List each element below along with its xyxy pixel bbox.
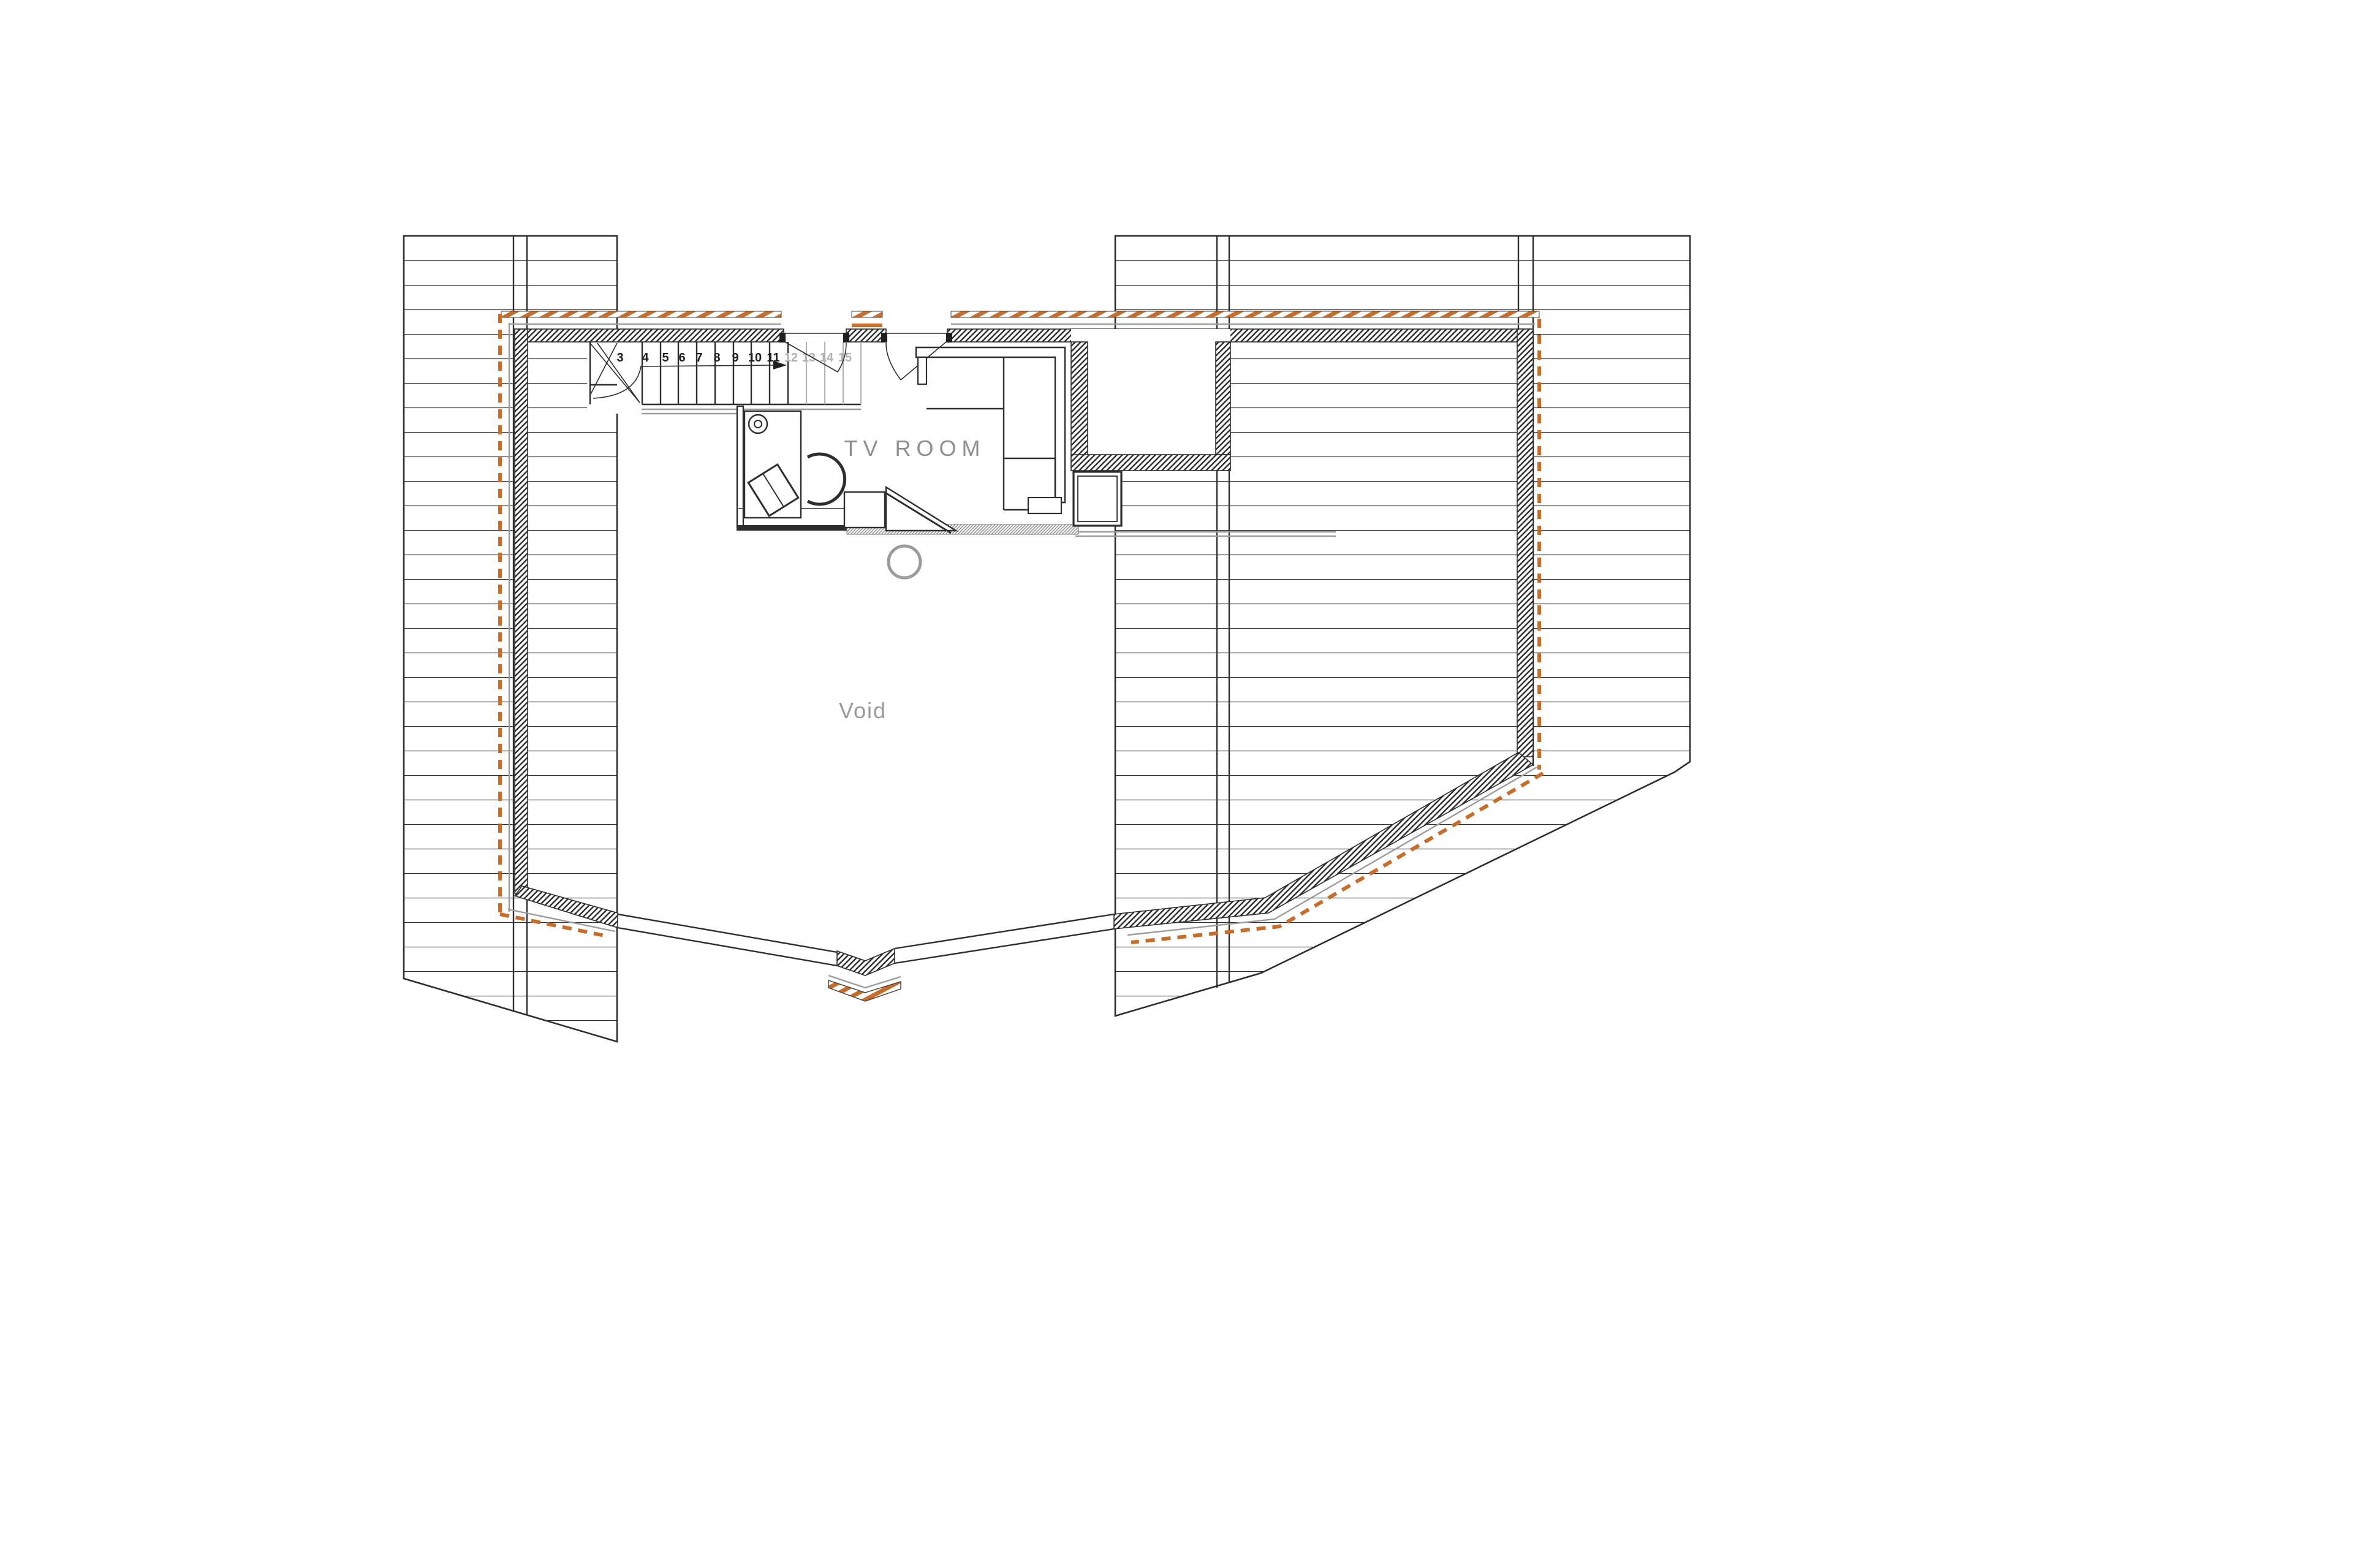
floor-plan-sheet: 3 4 5 6 7 8 9 10 11 12 13 14 15 (0, 0, 2353, 1568)
tread-number: 9 (732, 351, 738, 365)
floor-plan-drawing: 3 4 5 6 7 8 9 10 11 12 13 14 15 (0, 0, 2353, 1568)
desk-lamp-icon (754, 420, 762, 428)
tread-number: 12 (784, 351, 798, 365)
wall-top-right-segment (947, 329, 1533, 342)
door-jamb (946, 333, 952, 343)
left-roof-panel (404, 236, 617, 1042)
wall-top-left-segment (515, 329, 784, 342)
void-label: Void (839, 698, 887, 723)
door-jamb (779, 333, 786, 343)
tread-number: 3 (616, 351, 623, 365)
tread-number: 11 (767, 351, 779, 365)
orange-underline (852, 324, 882, 327)
wall-left (515, 329, 528, 893)
tread-number: 4 (642, 351, 649, 365)
shaft-wall-bottom (1071, 455, 1230, 471)
tv-room-south-wall (737, 525, 847, 531)
door-jamb (881, 333, 887, 343)
room-label-tv-room: TV ROOM (844, 436, 986, 461)
orange-band-top-left (501, 311, 781, 317)
shaft-wall-left (1071, 342, 1088, 471)
sofa-armrest (918, 357, 926, 384)
sofa-foot-table (1028, 498, 1061, 513)
tread-number: 5 (662, 351, 669, 365)
wall-top-stub (846, 329, 886, 342)
tread-number: 10 (748, 351, 762, 365)
wall-right (1517, 329, 1533, 757)
orange-band-top-middle (852, 311, 882, 317)
tread-number: 7 (695, 351, 702, 365)
duct-box (1074, 472, 1121, 526)
orange-band-top-right (951, 311, 1539, 317)
tread-number: 8 (713, 351, 720, 365)
shaft-wall-right (1216, 342, 1230, 455)
tread-number: 6 (678, 351, 685, 365)
door-jamb (843, 333, 849, 343)
tv-room-west-wall (737, 406, 743, 528)
